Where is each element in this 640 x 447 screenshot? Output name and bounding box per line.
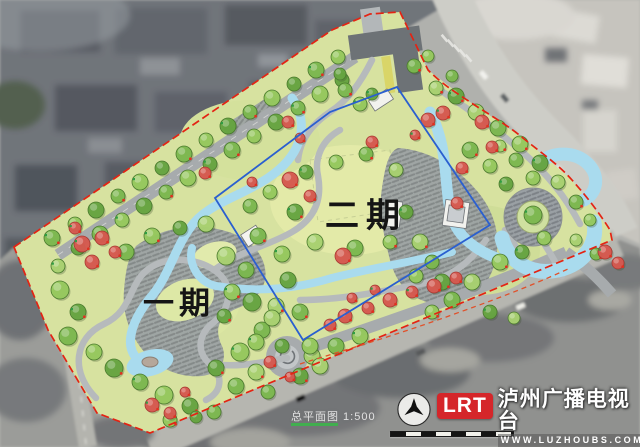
pond-rock [142,357,158,367]
station-website: WWW.LUZHOUBS.COM [498,434,640,447]
phase1-label: 一期 [143,278,215,323]
phase2-label: 二期 [325,188,407,237]
plan-canvas [0,0,640,447]
site-plan-image: 一期 二期 总平面图 1:500 LRT 泸州广播电视台 WWW.LUZHOUB… [0,0,640,447]
scale-note-underline [291,423,338,426]
station-logo-text: LRT [437,393,493,419]
scale-note: 总平面图 1:500 [291,408,376,424]
station-name: 泸州广播电视台 [498,389,640,433]
broadcaster-watermark: LRT 泸州广播电视台 WWW.LUZHOUBS.COM [396,389,640,447]
station-logo-icon [396,391,432,428]
